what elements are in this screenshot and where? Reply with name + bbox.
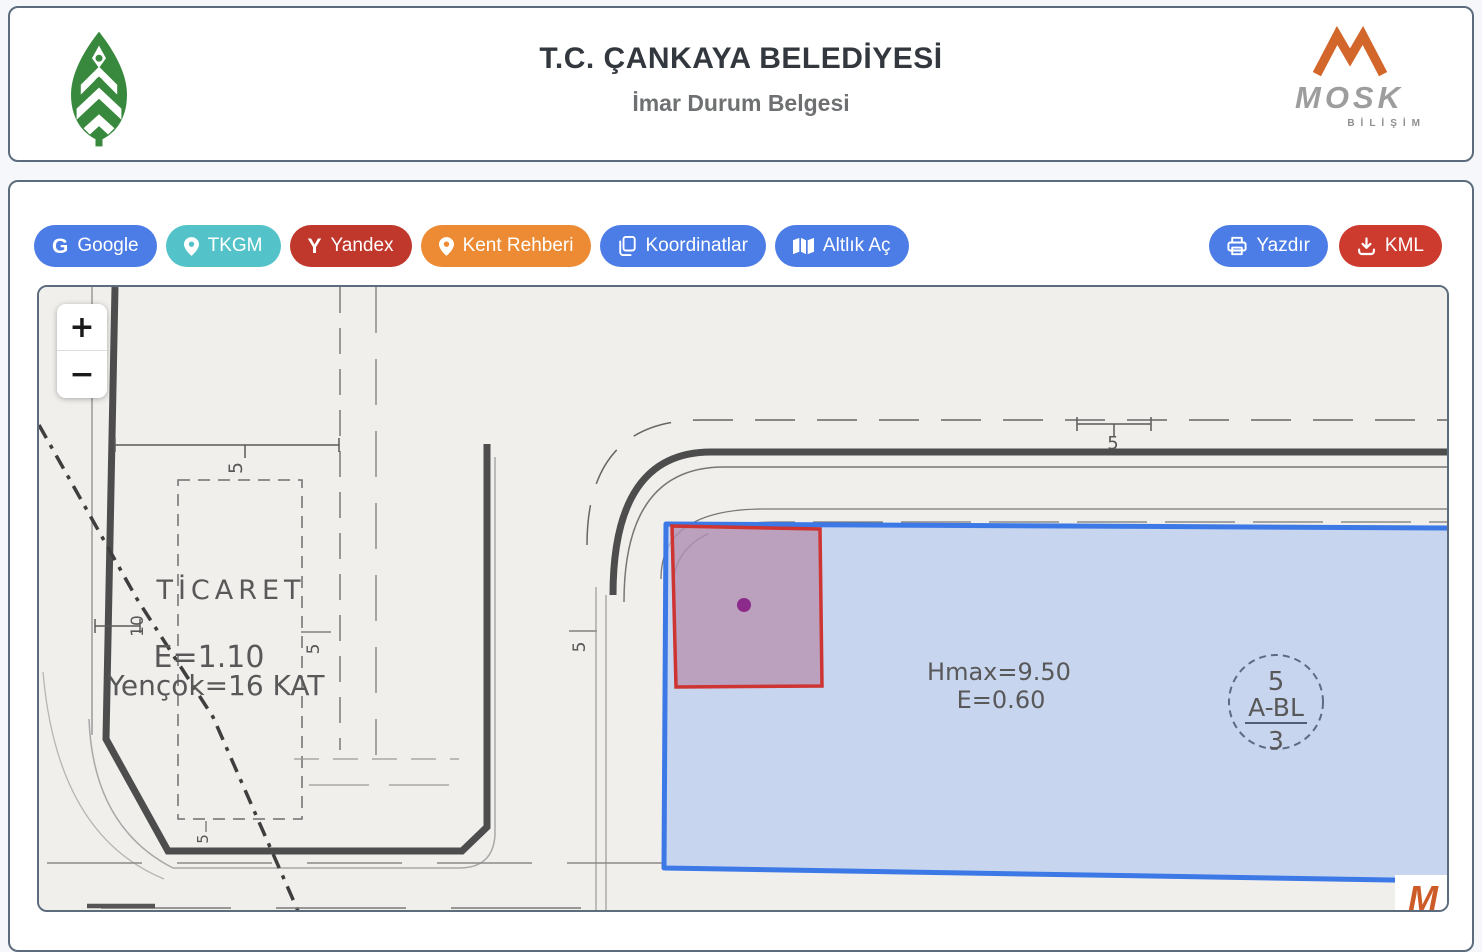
button-label: Google bbox=[77, 235, 138, 257]
button-label: Yazdır bbox=[1256, 235, 1310, 257]
mosk-name: MOSK bbox=[1295, 80, 1404, 116]
map-pin-icon bbox=[184, 237, 199, 256]
kml-download-button[interactable]: KML bbox=[1339, 225, 1442, 267]
altlik-ac-button[interactable]: Altlık Aç bbox=[775, 225, 909, 267]
mosk-logo: MOSK BİLİŞİM bbox=[1267, 26, 1432, 129]
koordinatlar-button[interactable]: Koordinatlar bbox=[600, 225, 765, 267]
button-label: TKGM bbox=[208, 235, 263, 257]
zoom-control: + − bbox=[57, 304, 107, 398]
zoom-out-button[interactable]: − bbox=[57, 351, 107, 398]
button-label: Yandex bbox=[331, 235, 394, 257]
page-subtitle: İmar Durum Belgesi bbox=[10, 90, 1472, 117]
dimension-label: 10 bbox=[128, 615, 148, 637]
dimension-label: 5 bbox=[194, 834, 212, 844]
map-pin-icon bbox=[439, 237, 454, 256]
mosk-tagline: BİLİŞİM bbox=[1267, 118, 1432, 129]
zone-ratio-label: E=0.60 bbox=[957, 686, 1046, 714]
block-label-bottom: 3 bbox=[1268, 726, 1284, 755]
copy-icon bbox=[618, 236, 636, 256]
zoning-map-canvas[interactable]: 5 10 5 5 5 TİCARET E=1.10 Yençok=16 KAT bbox=[37, 285, 1449, 912]
printer-icon bbox=[1227, 236, 1247, 256]
yandex-icon: Y bbox=[308, 236, 322, 257]
actions-toolbar: Yazdır KML bbox=[1209, 225, 1442, 267]
google-icon: G bbox=[52, 236, 68, 257]
button-label: Altlık Aç bbox=[823, 235, 891, 257]
zoning-map-drawing: 5 10 5 5 5 TİCARET E=1.10 Yençok=16 KAT bbox=[39, 287, 1449, 912]
kent-rehberi-button[interactable]: Kent Rehberi bbox=[421, 225, 592, 267]
zone-hmax-label: Hmax=9.50 bbox=[927, 658, 1071, 686]
dimension-label: 5 bbox=[1107, 433, 1118, 454]
mosk-m-icon bbox=[1304, 26, 1396, 78]
zone-height-label: Yençok=16 KAT bbox=[106, 669, 325, 702]
yandex-button[interactable]: Y Yandex bbox=[290, 225, 412, 267]
button-label: Koordinatlar bbox=[645, 235, 747, 257]
print-button[interactable]: Yazdır bbox=[1209, 225, 1328, 267]
block-label-middle: A-BL bbox=[1248, 693, 1304, 722]
zone-name-label: TİCARET bbox=[155, 574, 305, 606]
dimension-label: 5 bbox=[304, 644, 324, 655]
map-icon bbox=[793, 237, 814, 255]
download-icon bbox=[1357, 237, 1376, 256]
content-panel: G Google TKGM Y Yandex Kent Rehberi Koor… bbox=[8, 180, 1474, 952]
button-label: KML bbox=[1385, 235, 1424, 257]
header-panel: T.C. ÇANKAYA BELEDİYESİ İmar Durum Belge… bbox=[8, 6, 1474, 162]
dimension-label: 5 bbox=[225, 462, 247, 474]
zoom-in-button[interactable]: + bbox=[57, 304, 107, 351]
tkgm-button[interactable]: TKGM bbox=[166, 225, 281, 267]
map-links-toolbar: G Google TKGM Y Yandex Kent Rehberi Koor… bbox=[34, 225, 909, 267]
page-title: T.C. ÇANKAYA BELEDİYESİ bbox=[10, 42, 1472, 76]
mosk-watermark-icon: M bbox=[1408, 878, 1439, 912]
dimension-label: 5 bbox=[570, 642, 590, 653]
google-button[interactable]: G Google bbox=[34, 225, 157, 267]
selected-point-marker bbox=[737, 598, 751, 612]
button-label: Kent Rehberi bbox=[463, 235, 574, 257]
